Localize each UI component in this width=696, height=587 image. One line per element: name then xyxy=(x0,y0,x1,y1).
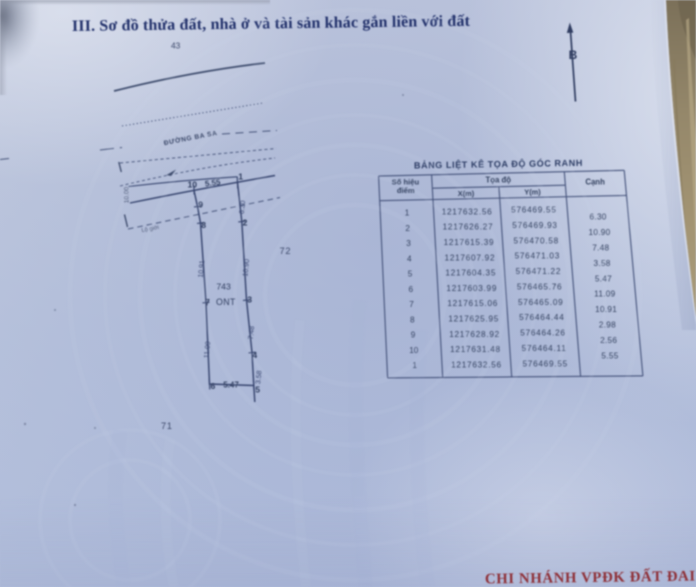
svg-text:5.55: 5.55 xyxy=(601,352,618,361)
svg-text:576464.44: 576464.44 xyxy=(519,313,564,322)
svg-text:3: 3 xyxy=(247,295,252,305)
svg-text:7.48: 7.48 xyxy=(248,326,256,340)
svg-text:3: 3 xyxy=(406,239,411,248)
svg-text:576465.09: 576465.09 xyxy=(518,298,563,307)
svg-text:4: 4 xyxy=(407,254,412,263)
svg-text:1217632.56: 1217632.56 xyxy=(451,361,502,370)
svg-text:6: 6 xyxy=(211,381,216,391)
svg-text:1217632.56: 1217632.56 xyxy=(442,207,493,216)
svg-text:43: 43 xyxy=(171,41,181,51)
svg-text:5: 5 xyxy=(408,270,413,279)
svg-text:576471.22: 576471.22 xyxy=(516,267,561,276)
svg-text:1217615.39: 1217615.39 xyxy=(444,238,495,247)
svg-text:576464.26: 576464.26 xyxy=(520,329,565,338)
svg-text:576465.76: 576465.76 xyxy=(517,282,562,291)
svg-text:576470.58: 576470.58 xyxy=(513,236,558,245)
svg-text:Cạnh: Cạnh xyxy=(585,178,605,187)
svg-text:8: 8 xyxy=(410,315,415,324)
svg-text:B: B xyxy=(569,48,578,62)
svg-text:2: 2 xyxy=(243,218,248,228)
svg-text:Y(m): Y(m) xyxy=(524,187,541,196)
svg-text:576471.03: 576471.03 xyxy=(515,252,560,261)
svg-text:6: 6 xyxy=(409,285,414,294)
svg-text:7: 7 xyxy=(409,300,414,309)
svg-text:1217628.92: 1217628.92 xyxy=(449,330,500,339)
svg-text:CHI NHÁNH VPĐK ĐẤT ĐAI: CHI NHÁNH VPĐK ĐẤT ĐAI xyxy=(485,568,696,587)
svg-text:8: 8 xyxy=(201,220,206,230)
svg-text:1: 1 xyxy=(405,209,410,218)
svg-text:71: 71 xyxy=(161,421,173,431)
svg-text:1: 1 xyxy=(238,172,243,182)
svg-text:ONT: ONT xyxy=(216,297,236,307)
svg-text:5: 5 xyxy=(255,384,260,394)
svg-text:743: 743 xyxy=(216,282,231,292)
svg-text:1217603.99: 1217603.99 xyxy=(446,284,497,293)
svg-text:10.90: 10.90 xyxy=(242,259,251,277)
svg-text:10: 10 xyxy=(187,180,197,190)
